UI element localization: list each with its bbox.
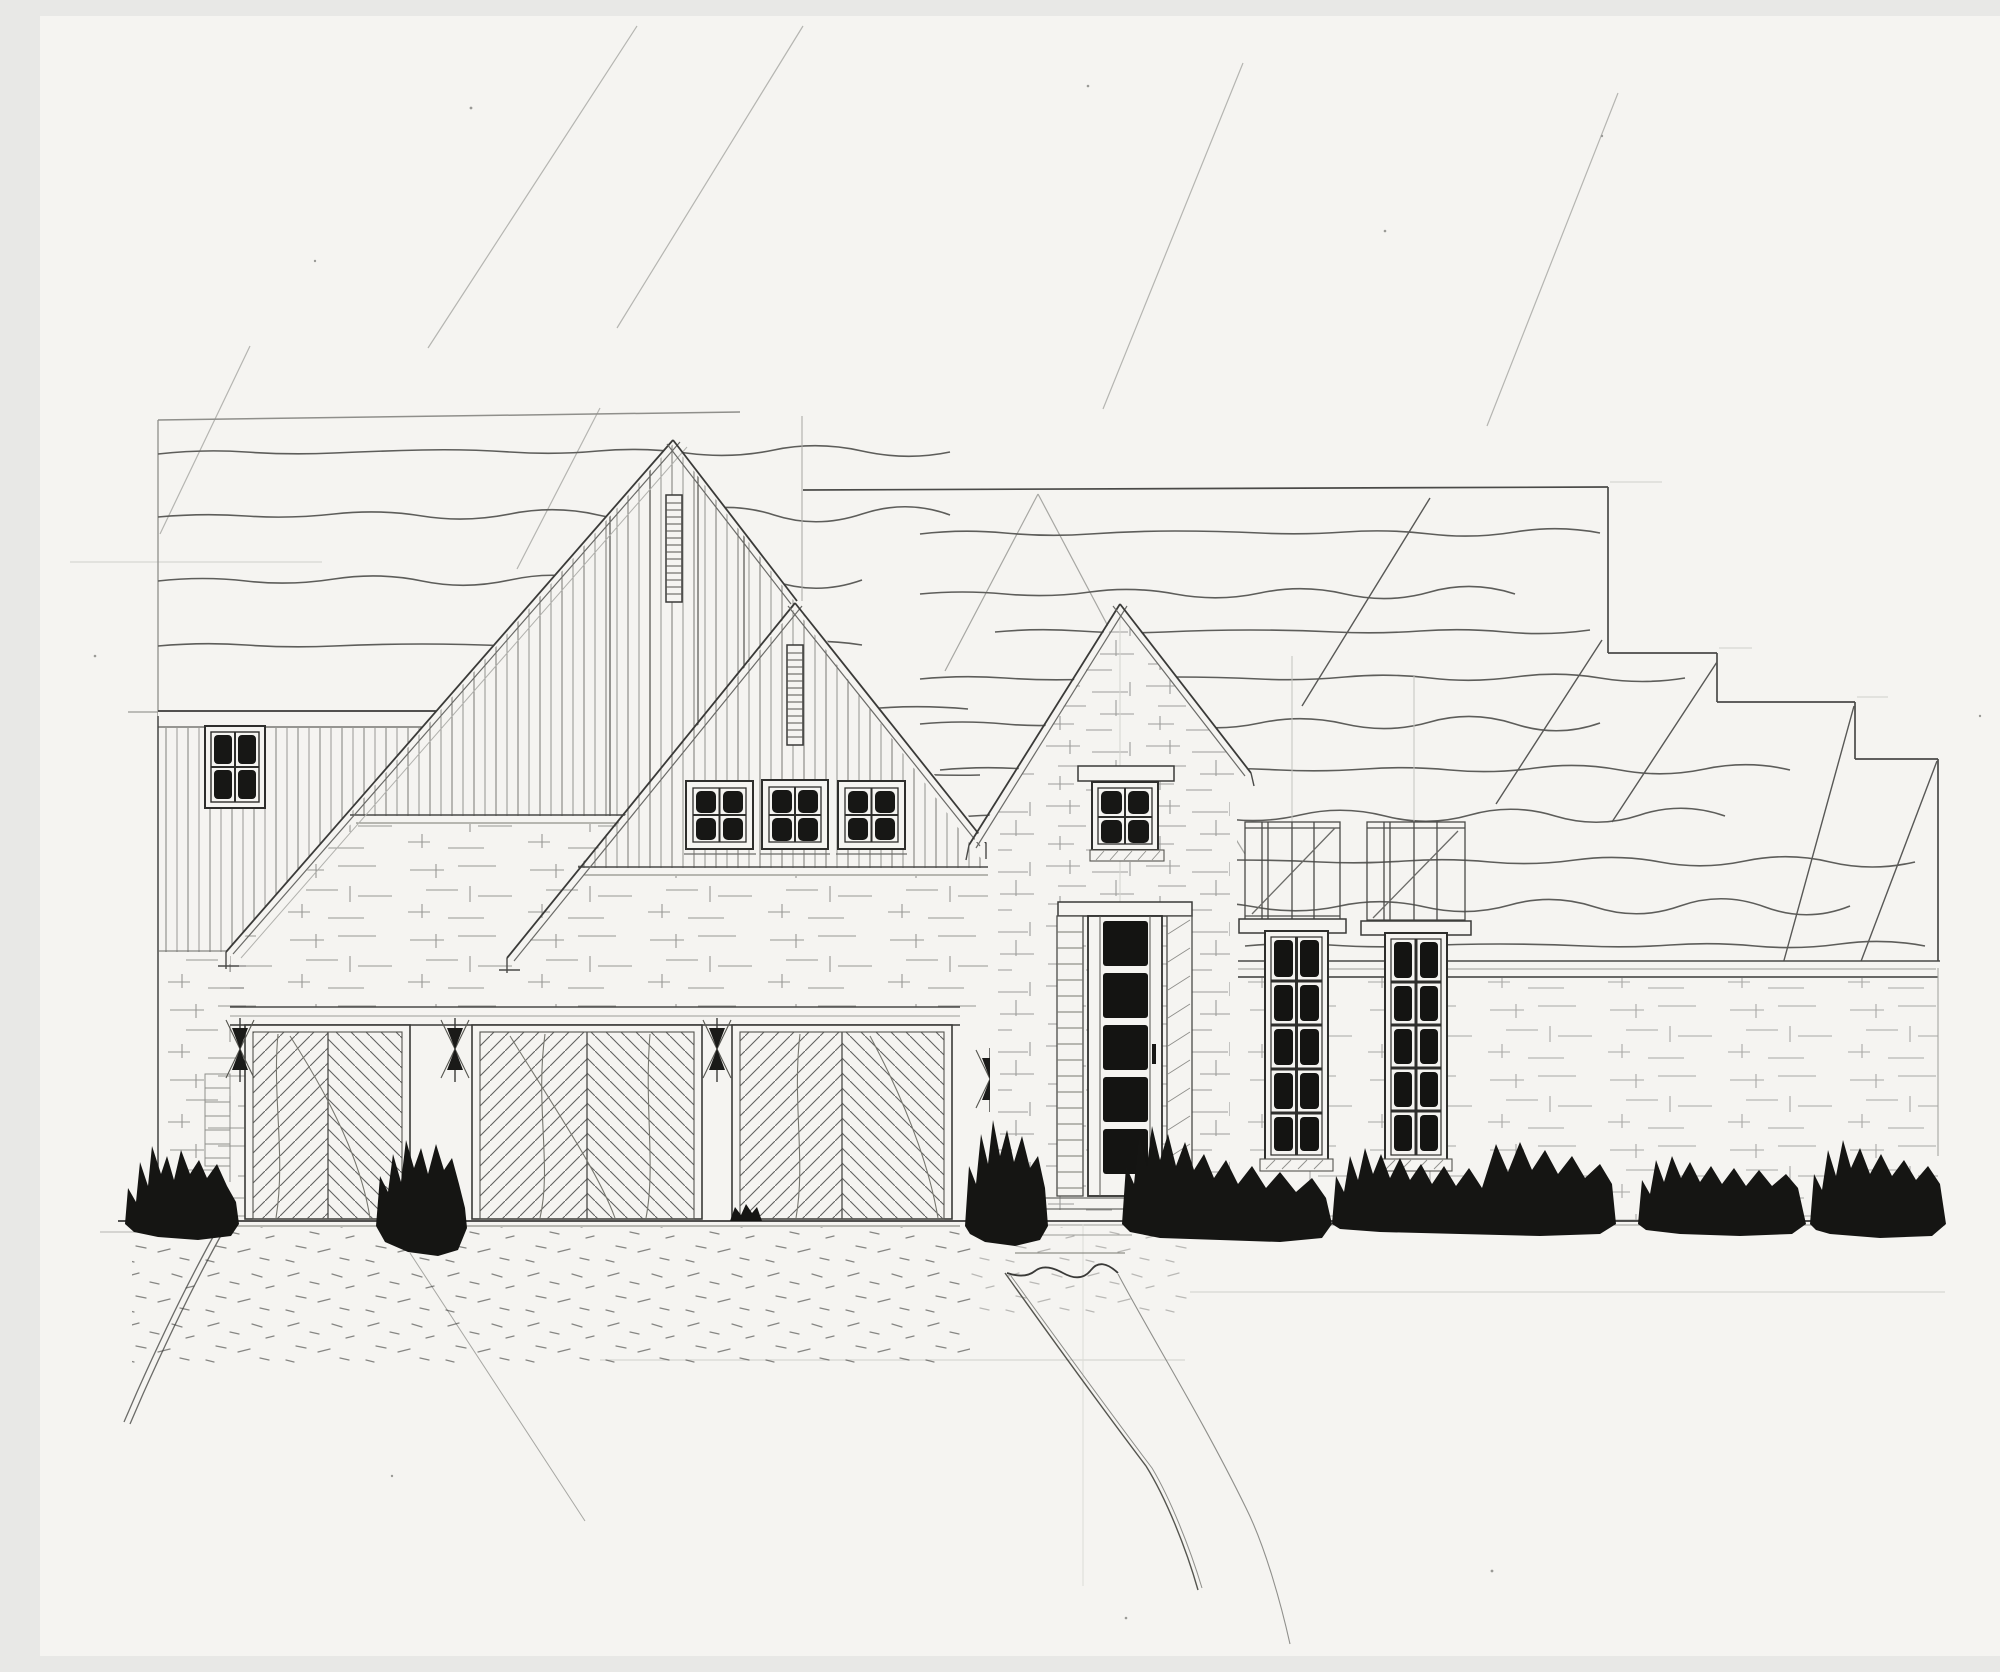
upper-unit bbox=[1245, 822, 1340, 922]
garage-block bbox=[226, 1007, 1004, 1219]
gable-window-3 bbox=[836, 781, 907, 854]
door-glass-panels bbox=[1103, 921, 1148, 1174]
ground bbox=[100, 1221, 1945, 1644]
wall-sconce bbox=[703, 1018, 731, 1082]
sketch-sheet: Hand-drawn front elevation sketch of a s… bbox=[40, 16, 2000, 1656]
left-wing-window bbox=[205, 726, 265, 808]
garage-door-3 bbox=[732, 1025, 952, 1219]
attic-vent-main bbox=[666, 495, 682, 602]
gable-window-1 bbox=[684, 781, 756, 854]
door-handle bbox=[1152, 1044, 1156, 1064]
driveway-stipple bbox=[132, 1227, 970, 1369]
gable-window-2 bbox=[760, 780, 830, 854]
garage-door-2 bbox=[472, 1025, 702, 1219]
right-wing bbox=[1238, 822, 1940, 1221]
attic-vent-secondary bbox=[787, 645, 803, 745]
wall-sconce bbox=[441, 1018, 469, 1082]
elevation-drawing bbox=[40, 16, 2000, 1656]
gable-windows bbox=[684, 780, 907, 854]
entry-tower bbox=[966, 604, 1255, 1221]
